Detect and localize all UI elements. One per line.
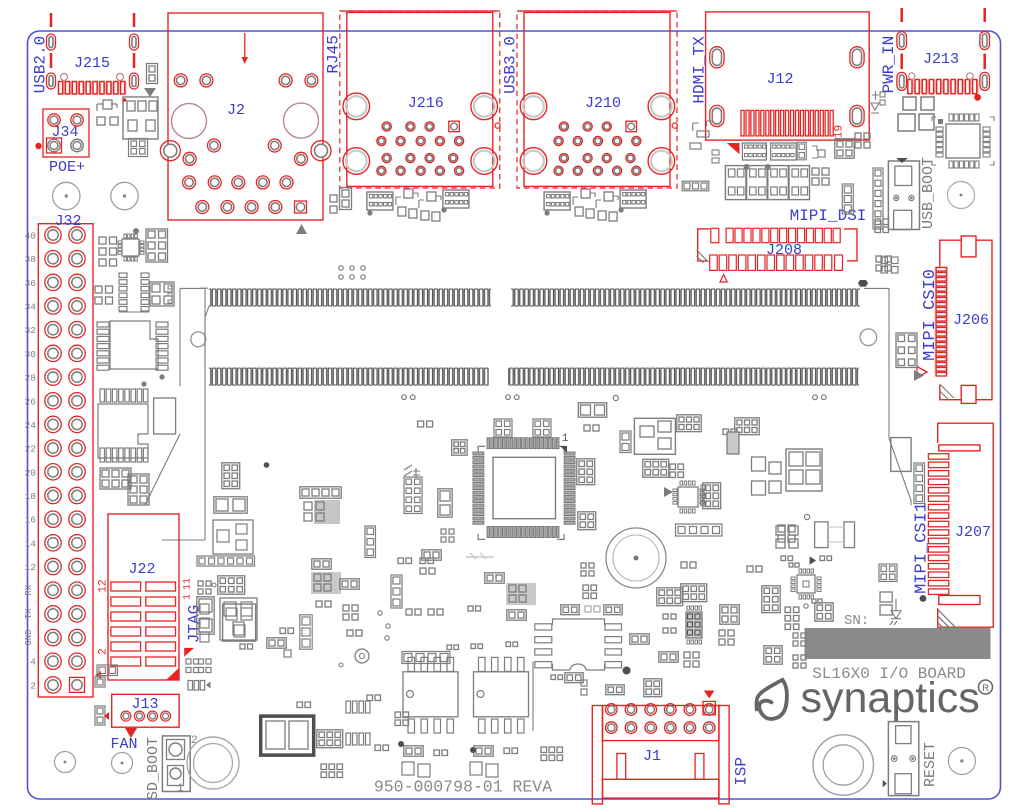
svg-text:J12: J12	[766, 71, 793, 88]
svg-text:MIPI_DSI: MIPI_DSI	[790, 207, 867, 225]
svg-text:RESET: RESET	[922, 742, 939, 787]
svg-text:32: 32	[25, 325, 37, 336]
svg-text:USB_BOOT: USB_BOOT	[920, 157, 937, 229]
svg-text:FAN: FAN	[110, 736, 137, 753]
svg-text:40: 40	[25, 231, 37, 242]
svg-text:J2: J2	[227, 102, 245, 119]
svg-text:20: 20	[25, 467, 37, 478]
svg-text:HDMI_TX: HDMI_TX	[691, 36, 709, 104]
svg-text:950-000798-01 REVA: 950-000798-01 REVA	[374, 778, 552, 797]
svg-text:J207: J207	[955, 524, 991, 541]
svg-text:12: 12	[98, 579, 110, 592]
svg-text:J213: J213	[923, 51, 959, 68]
svg-text:JTAG: JTAG	[186, 605, 204, 643]
svg-text:GND: GND	[24, 629, 34, 645]
svg-text:18: 18	[25, 491, 37, 502]
svg-text:28: 28	[25, 373, 37, 384]
svg-text:TX: TX	[24, 608, 34, 619]
svg-text:J22: J22	[128, 561, 155, 578]
svg-text:26: 26	[25, 396, 37, 407]
svg-text:11: 11	[183, 578, 194, 590]
svg-text:SN:: SN:	[844, 613, 869, 629]
svg-text:38: 38	[25, 254, 37, 265]
svg-text:J215: J215	[74, 55, 110, 72]
svg-text:4: 4	[30, 657, 36, 668]
svg-text:J1: J1	[643, 748, 661, 765]
svg-text:22: 22	[25, 444, 37, 455]
svg-text:J216: J216	[408, 95, 444, 112]
svg-text:SD_BOOT: SD_BOOT	[145, 737, 162, 800]
svg-text:14: 14	[25, 538, 37, 549]
svg-text:2: 2	[98, 648, 110, 655]
svg-text:12: 12	[25, 562, 37, 573]
svg-text:16: 16	[25, 515, 37, 526]
svg-text:J206: J206	[953, 312, 989, 329]
svg-text:30: 30	[25, 349, 37, 360]
svg-text:PWR_IN: PWR_IN	[880, 36, 898, 94]
svg-text:J210: J210	[585, 95, 621, 112]
svg-text:ISP: ISP	[733, 757, 751, 786]
svg-text:2: 2	[30, 680, 36, 691]
svg-text:J208: J208	[766, 242, 802, 259]
svg-text:19: 19	[834, 125, 846, 138]
svg-text:RX: RX	[24, 584, 34, 595]
svg-text:POE+: POE+	[49, 159, 85, 176]
svg-text:36: 36	[25, 278, 37, 289]
svg-text:J13: J13	[131, 696, 158, 713]
svg-text:24: 24	[25, 420, 37, 431]
svg-text:1: 1	[183, 594, 194, 600]
svg-text:1: 1	[177, 783, 184, 795]
svg-text:1: 1	[562, 433, 569, 445]
svg-text:34: 34	[25, 302, 37, 313]
svg-text:synaptics: synaptics	[801, 674, 980, 722]
svg-text:R: R	[982, 683, 989, 694]
